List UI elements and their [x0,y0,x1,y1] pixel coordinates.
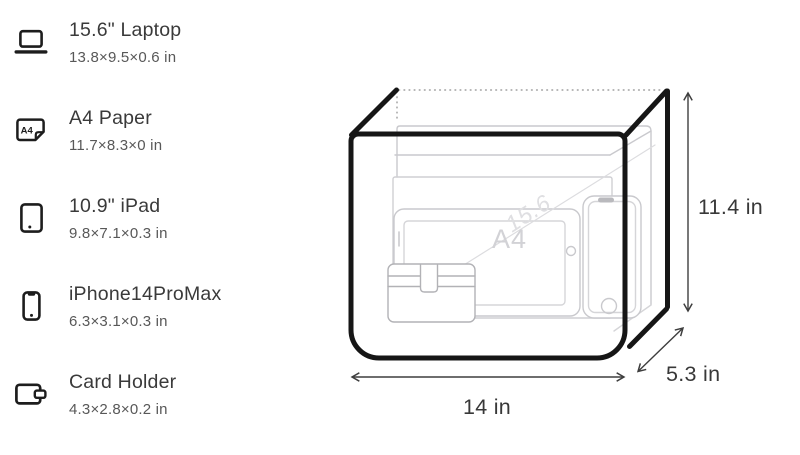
ghost-contents: A4 15.6 [388,126,655,331]
width-dimension-label: 14 in [463,395,511,419]
ghost-iphone [583,196,641,318]
bag-dimension-diagram: A4 15.6 [0,0,800,455]
height-dimension-label: 11.4 in [698,195,763,219]
bag-top-right-diagonal [626,91,667,135]
ghost-card-holder [388,264,475,322]
bag-top-left-diagonal [352,90,397,135]
depth-dimension-label: 5.3 in [666,362,720,386]
